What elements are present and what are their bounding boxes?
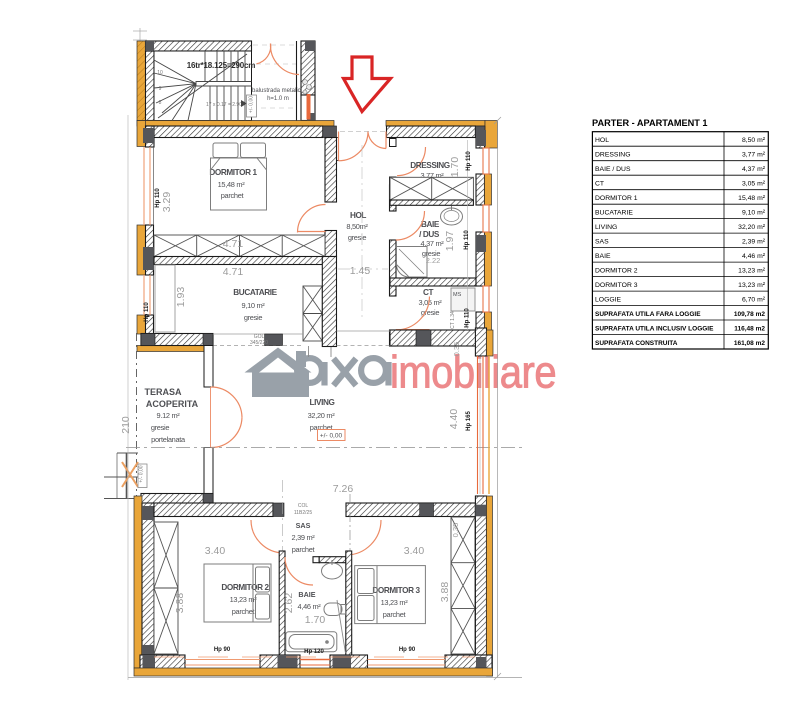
svg-text:HOL: HOL [595,137,609,144]
svg-text:3,05 m²: 3,05 m² [419,298,443,307]
svg-text:parchet: parchet [292,545,315,554]
svg-text:2,39 m²: 2,39 m² [292,533,316,542]
svg-text:+/- 0,00: +/- 0,00 [249,96,255,113]
svg-text:4,46 m²: 4,46 m² [298,602,322,611]
svg-text:1.70: 1.70 [305,614,326,626]
svg-text:h=1.0 m: h=1.0 m [267,96,289,102]
svg-text:8,50 m²: 8,50 m² [742,137,766,144]
svg-text:CT 1.34: CT 1.34 [450,311,456,329]
svg-text:LOGGIE: LOGGIE [595,296,622,303]
svg-text:4.40: 4.40 [448,409,460,430]
svg-text:LIVING: LIVING [310,398,335,407]
svg-text:4,46 m²: 4,46 m² [742,253,766,260]
svg-text:BAIE: BAIE [298,590,315,599]
svg-text:gresie: gresie [244,313,263,322]
svg-text:DORMITOR 3: DORMITOR 3 [595,282,638,289]
svg-text:DORMITOR 2: DORMITOR 2 [221,583,269,592]
svg-text:BAIE / DUS: BAIE / DUS [595,166,631,173]
svg-text:8,50m²: 8,50m² [346,222,368,231]
svg-text:2.62: 2.62 [283,593,295,614]
svg-text:3.40: 3.40 [205,545,226,557]
svg-text:DORMITOR 1: DORMITOR 1 [595,195,638,202]
svg-text:SUPRAFATA UTILA INCLUSIV LOGGI: SUPRAFATA UTILA INCLUSIV LOGGIE [595,325,714,332]
svg-text:DRESSING: DRESSING [595,152,631,159]
svg-text:Hp 110: Hp 110 [465,308,471,328]
svg-text:DORMITOR 2: DORMITOR 2 [595,267,638,274]
svg-text:9.12 m²: 9.12 m² [157,411,181,420]
svg-text:13,23 m²: 13,23 m² [738,282,766,289]
svg-text:116,48 m2: 116,48 m2 [734,325,765,332]
svg-text:15,48 m²: 15,48 m² [218,180,246,189]
svg-text:gresie: gresie [151,423,170,432]
svg-text:4.71: 4.71 [223,238,244,250]
svg-text:Hp 165: Hp 165 [466,411,472,431]
svg-text:Hp 110: Hp 110 [155,188,161,208]
svg-text:portelanata: portelanata [151,435,186,444]
svg-text:1.93: 1.93 [175,287,187,308]
svg-text:2.22: 2.22 [426,256,441,265]
svg-text:4.71: 4.71 [223,266,244,278]
svg-text:9,10 m²: 9,10 m² [742,209,766,216]
svg-text:7.26: 7.26 [333,483,354,495]
svg-text:32,20 m²: 32,20 m² [308,411,336,420]
svg-text:CT: CT [595,181,604,188]
svg-text:3.88: 3.88 [174,593,186,614]
svg-text:3,77 m²: 3,77 m² [742,152,766,159]
svg-text:TERASA: TERASA [144,387,182,397]
svg-text:DORMITOR 3: DORMITOR 3 [372,586,420,595]
svg-text:parchet: parchet [232,607,255,616]
svg-text:BUCATARIE: BUCATARIE [595,209,633,216]
svg-text:parchet: parchet [221,191,244,200]
svg-text:6,70 m²: 6,70 m² [742,296,766,303]
svg-text:17 x 0.17 = 2.90: 17 x 0.17 = 2.90 [206,102,242,108]
svg-text:Hp 90: Hp 90 [214,647,231,653]
svg-text:SUPRAFATA CONSTRUITA: SUPRAFATA CONSTRUITA [595,340,678,347]
svg-text:1.70: 1.70 [449,157,461,178]
svg-text:COL: COL [298,503,309,509]
svg-text:3.88: 3.88 [439,582,451,603]
svg-text:8: 8 [159,100,162,106]
svg-text:SAS: SAS [296,521,311,530]
svg-text:1.97: 1.97 [444,231,456,252]
svg-text:1.45: 1.45 [350,265,371,277]
svg-text:345/220: 345/220 [250,340,268,346]
svg-text:BAIE: BAIE [595,253,611,260]
svg-text:9: 9 [159,86,162,92]
svg-text:SAS: SAS [595,238,609,245]
svg-text:+/- 0,00: +/- 0,00 [320,433,343,440]
svg-text:Hp 110: Hp 110 [464,230,470,250]
svg-text:210: 210 [120,416,132,434]
svg-text:HOL: HOL [350,211,366,220]
svg-text:MS: MS [453,292,462,298]
svg-text:15,48 m²: 15,48 m² [738,195,766,202]
svg-text:LIVING: LIVING [595,224,617,231]
svg-text:9,10 m²: 9,10 m² [242,301,266,310]
svg-text:parchet: parchet [383,610,406,619]
svg-text:CT: CT [423,288,434,297]
svg-text:3,05 m²: 3,05 m² [742,181,766,188]
svg-text:3.40: 3.40 [404,545,425,557]
svg-text:SUPRAFATA UTILA FARA LOGGIE: SUPRAFATA UTILA FARA LOGGIE [595,311,701,318]
svg-text:109,78 m2: 109,78 m2 [734,311,765,318]
svg-text:Hp 110: Hp 110 [466,151,472,171]
svg-text:0.35: 0.35 [451,523,460,538]
svg-text:DORMITOR 1: DORMITOR 1 [209,168,257,177]
svg-text:16tr*18.125=290cm: 16tr*18.125=290cm [187,61,256,70]
svg-text:PARTER - APARTAMENT 1: PARTER - APARTAMENT 1 [592,118,708,128]
svg-text:0.35: 0.35 [452,342,461,357]
svg-text:4,37 m²: 4,37 m² [742,166,766,173]
svg-text:13,23 m²: 13,23 m² [738,267,766,274]
svg-text:Hp 90: Hp 90 [399,647,416,653]
svg-text:DRESSING: DRESSING [410,161,450,170]
svg-text:161,08 m2: 161,08 m2 [734,340,765,347]
svg-text:+/- 0,00: +/- 0,00 [139,465,145,482]
svg-text:3.29: 3.29 [161,192,173,213]
svg-text:Hp 120: Hp 120 [304,649,324,655]
svg-text:13,23 m²: 13,23 m² [381,598,409,607]
svg-text:/ DUS: / DUS [419,230,440,239]
svg-text:11B2/25: 11B2/25 [294,510,312,516]
svg-text:BUCATARIE: BUCATARIE [233,288,277,297]
svg-text:10: 10 [157,70,163,76]
svg-text:ACOPERITA: ACOPERITA [146,399,199,409]
svg-text:imobiliare: imobiliare [390,347,556,398]
svg-text:Hp 110: Hp 110 [144,302,150,322]
svg-text:gresie: gresie [348,233,367,242]
svg-text:2,39 m²: 2,39 m² [742,238,766,245]
svg-text:32,20 m²: 32,20 m² [738,224,766,231]
svg-text:BAIE: BAIE [421,220,440,229]
